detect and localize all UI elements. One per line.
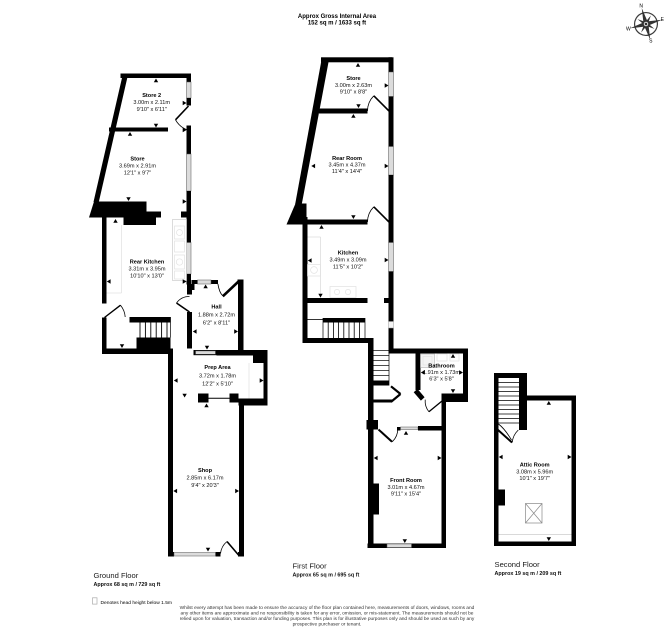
svg-text:9'4" x 20'3": 9'4" x 20'3" xyxy=(191,483,219,489)
svg-text:2.85m x 6.17m: 2.85m x 6.17m xyxy=(187,476,224,482)
svg-text:3.45m x 4.37m: 3.45m x 4.37m xyxy=(329,163,366,169)
svg-text:6'2" x 8'11": 6'2" x 8'11" xyxy=(203,321,230,327)
svg-text:Hall: Hall xyxy=(211,305,222,311)
svg-text:3.31m x 3.95m: 3.31m x 3.95m xyxy=(129,267,166,273)
svg-text:Denotes head height below 1.5m: Denotes head height below 1.5m xyxy=(101,600,173,606)
svg-text:Store: Store xyxy=(130,157,144,163)
svg-text:prospective purchaser or tenan: prospective purchaser or tenant. xyxy=(293,621,362,627)
svg-text:12'1" x 9'7": 12'1" x 9'7" xyxy=(124,171,152,177)
svg-text:Store: Store xyxy=(346,76,360,82)
svg-text:Whilst every attempt has been: Whilst every attempt has been made to en… xyxy=(180,605,475,611)
svg-text:relied upon for valuation, tra: relied upon for valuation, transaction a… xyxy=(180,616,475,622)
svg-text:N: N xyxy=(639,3,643,9)
svg-text:1.88m x 2.72m: 1.88m x 2.72m xyxy=(198,313,235,319)
svg-text:Store 2: Store 2 xyxy=(142,93,161,99)
svg-text:Ground Floor: Ground Floor xyxy=(94,571,139,580)
svg-text:Bathroom: Bathroom xyxy=(428,364,454,370)
svg-text:W: W xyxy=(626,27,631,33)
svg-text:Approx 65 sq m / 695 sq ft: Approx 65 sq m / 695 sq ft xyxy=(293,573,360,579)
svg-text:Second Floor: Second Floor xyxy=(495,560,541,569)
svg-text:Shop: Shop xyxy=(198,468,213,474)
svg-text:11'5" x 10'2": 11'5" x 10'2" xyxy=(333,265,363,271)
svg-text:Approx 68 sq m / 729 sq ft: Approx 68 sq m / 729 sq ft xyxy=(94,582,161,588)
svg-text:11'4" x 14'4": 11'4" x 14'4" xyxy=(332,169,362,175)
svg-text:Rear Kitchen: Rear Kitchen xyxy=(130,260,165,266)
svg-text:9'10" x 6'11": 9'10" x 6'11" xyxy=(137,107,167,113)
svg-text:First Floor: First Floor xyxy=(293,562,328,571)
svg-text:Kitchen: Kitchen xyxy=(338,251,359,257)
svg-text:Front Room: Front Room xyxy=(390,478,422,484)
svg-text:Approx 19 sq m / 209 sq ft: Approx 19 sq m / 209 sq ft xyxy=(495,571,562,577)
svg-text:any other items are approximat: any other items are approximate and no r… xyxy=(181,611,474,617)
svg-text:3.08m x 5.96m: 3.08m x 5.96m xyxy=(516,470,553,476)
svg-text:Rear Room: Rear Room xyxy=(332,156,362,162)
svg-text:3.00m x 2.63m: 3.00m x 2.63m xyxy=(335,83,372,89)
svg-text:Prep Area: Prep Area xyxy=(204,365,231,371)
svg-text:3.01m x 4.67m: 3.01m x 4.67m xyxy=(388,485,425,491)
svg-text:Attic Room: Attic Room xyxy=(520,463,550,469)
svg-text:10'1" x 19'7": 10'1" x 19'7" xyxy=(519,476,550,482)
svg-text:3.00m x 2.11m: 3.00m x 2.11m xyxy=(133,100,170,106)
svg-text:3.72m x 1.78m: 3.72m x 1.78m xyxy=(199,374,236,380)
svg-text:1.91m x 1.73m: 1.91m x 1.73m xyxy=(423,370,460,376)
svg-text:Approx Gross Internal Area: Approx Gross Internal Area xyxy=(298,14,377,20)
svg-text:12'2" x 5'10": 12'2" x 5'10" xyxy=(202,382,233,388)
svg-text:9'11" x 15'4": 9'11" x 15'4" xyxy=(391,492,421,498)
svg-text:9'10" x 8'8": 9'10" x 8'8" xyxy=(340,90,368,96)
svg-text:10'10" x 13'0": 10'10" x 13'0" xyxy=(130,274,164,280)
svg-text:3.49m x 3.09m: 3.49m x 3.09m xyxy=(330,258,367,264)
svg-text:3.69m x 2.91m: 3.69m x 2.91m xyxy=(119,164,156,170)
svg-text:152 sq m / 1633 sq ft: 152 sq m / 1633 sq ft xyxy=(308,21,366,27)
svg-text:6'3" x 5'8": 6'3" x 5'8" xyxy=(429,377,453,383)
